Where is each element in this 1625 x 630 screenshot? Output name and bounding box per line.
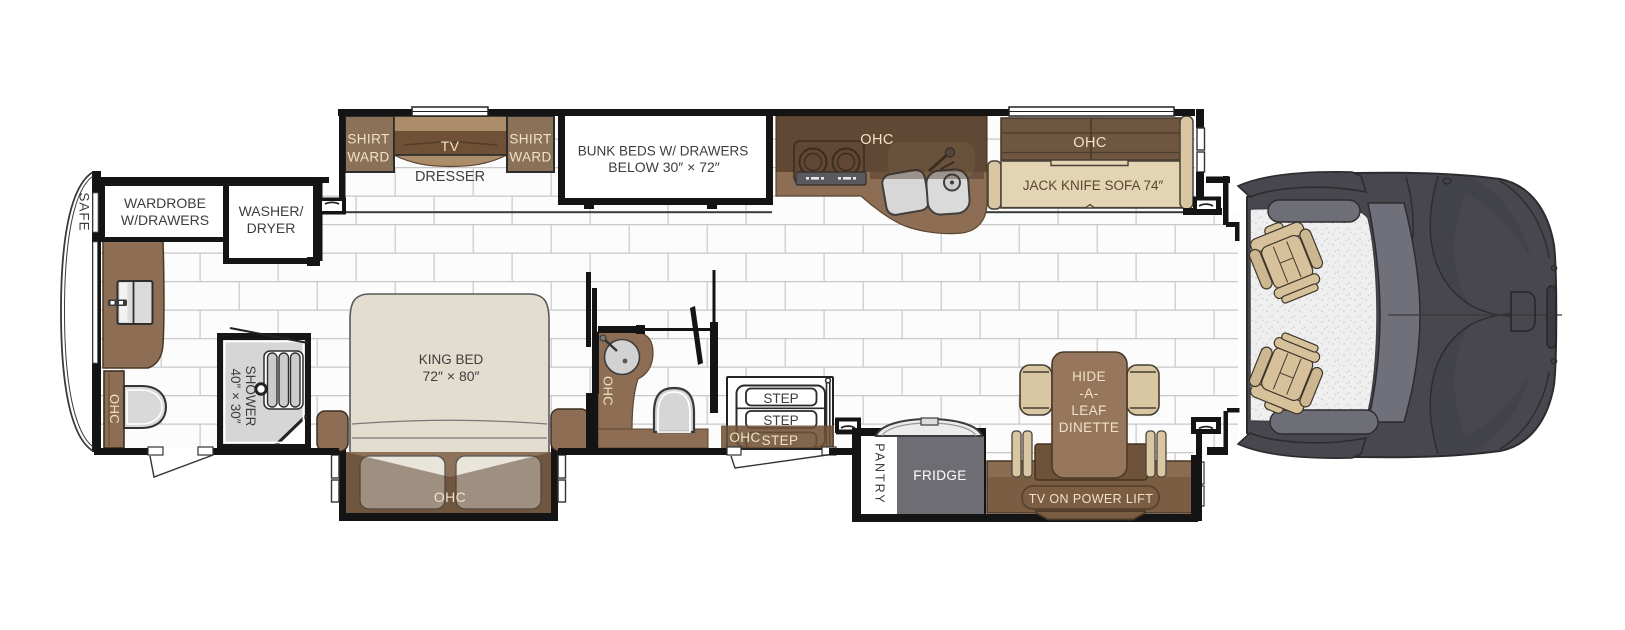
svg-text:W/DRAWERS: W/DRAWERS <box>121 212 209 228</box>
svg-text:SHOWER: SHOWER <box>243 366 258 427</box>
svg-text:40″ × 30″: 40″ × 30″ <box>228 369 243 424</box>
svg-text:LEAF: LEAF <box>1071 403 1106 418</box>
svg-text:WASHER/: WASHER/ <box>239 203 304 219</box>
svg-text:BELOW 30″ × 72″: BELOW 30″ × 72″ <box>608 159 720 175</box>
svg-text:DRESSER: DRESSER <box>415 169 485 185</box>
svg-text:TV: TV <box>441 138 460 154</box>
svg-text:-A-: -A- <box>1079 386 1098 401</box>
svg-text:WARDROBE: WARDROBE <box>124 195 206 211</box>
svg-text:DRYER: DRYER <box>247 220 296 236</box>
svg-text:SHIRT: SHIRT <box>509 132 551 147</box>
svg-text:72″ × 80″: 72″ × 80″ <box>422 368 479 384</box>
svg-text:OHC: OHC <box>729 430 760 445</box>
svg-text:TV ON POWER LIFT: TV ON POWER LIFT <box>1029 492 1153 506</box>
svg-text:BUNK BEDS W/ DRAWERS: BUNK BEDS W/ DRAWERS <box>578 144 749 159</box>
svg-text:OHC: OHC <box>1073 135 1106 151</box>
svg-text:STEP: STEP <box>763 391 798 406</box>
svg-text:OHC: OHC <box>860 132 893 148</box>
svg-text:PANTRY: PANTRY <box>873 443 887 505</box>
svg-text:OHC: OHC <box>601 376 616 406</box>
svg-text:SAFE: SAFE <box>77 192 92 231</box>
svg-text:OHC: OHC <box>434 489 466 505</box>
svg-text:DINETTE: DINETTE <box>1059 420 1120 435</box>
svg-text:KING BED: KING BED <box>419 352 484 367</box>
svg-text:OHC: OHC <box>107 394 122 424</box>
svg-text:STEP: STEP <box>762 433 799 448</box>
svg-text:JACK KNIFE SOFA 74″: JACK KNIFE SOFA 74″ <box>1023 178 1164 193</box>
svg-text:WARD: WARD <box>509 150 551 165</box>
svg-text:SHIRT: SHIRT <box>347 132 389 147</box>
svg-text:WARD: WARD <box>347 150 389 165</box>
svg-text:HIDE: HIDE <box>1072 369 1106 384</box>
svg-text:FRIDGE: FRIDGE <box>913 468 966 483</box>
